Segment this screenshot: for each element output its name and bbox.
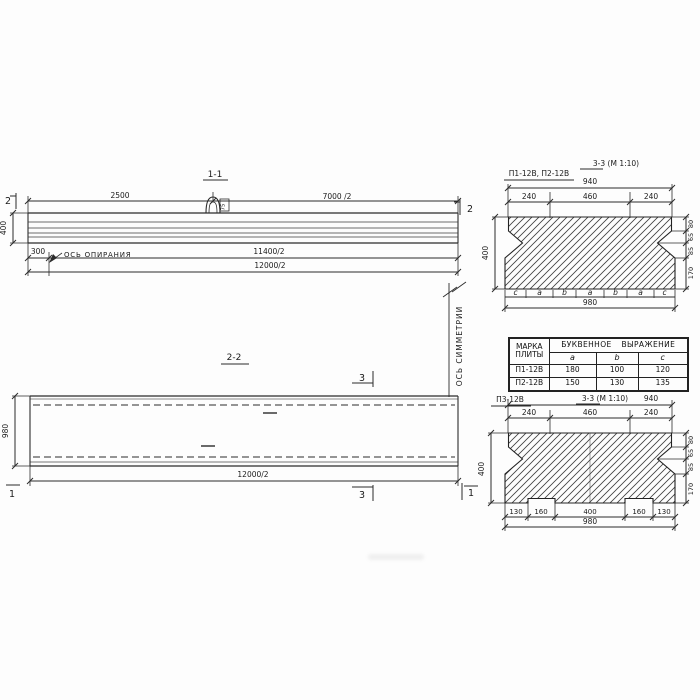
cut-mark-1-right: 1 [468,488,474,499]
section-top-title: 3-3 (М 1:10) [593,159,639,168]
cut-mark-2-left: 2 [5,196,11,207]
dim-85-top: 85 [687,247,695,255]
dim-300: 300 [31,247,46,256]
dim-160-left: 160 [534,508,547,516]
letter-a-2: a [588,288,593,297]
table-row: П1-12В 180 100 120 [509,364,688,377]
dim-980-top: 980 [583,298,598,307]
dim-400-bottom-row: 400 [583,508,596,516]
row2-c: 135 [638,377,688,391]
row1-a: 180 [549,364,596,377]
section-bottom-mark: П3-12В [496,395,524,404]
letter-a-1: a [537,288,542,297]
dim-11400-2: 11400/2 [253,247,284,256]
row2-a: 150 [549,377,596,391]
row1-mark: П1-12В [509,364,549,377]
dim-7000-2: 7000 /2 [323,192,352,201]
cut-mark-3-top: 3 [359,373,365,384]
dim-460-bottom: 460 [583,408,598,417]
dim-12000-2-elevation: 12000/2 [254,261,285,270]
scan-artifact [368,554,424,560]
elevation-title: 1-1 [208,170,223,180]
dim-980-plan: 980 [1,424,10,439]
loop-mark-label: 75 [221,203,227,210]
row1-c: 120 [638,364,688,377]
dim-400-top: 400 [481,246,490,261]
legend-table: МАРКА ПЛИТЫ БУКВЕННОЕ ВЫРАЖЕНИЕ a b c П1… [508,337,689,392]
dim-460-top: 460 [583,192,598,201]
dim-160-right: 160 [632,508,645,516]
dim-80-bottom: 80 [687,436,695,444]
letter-b-1: b [562,288,567,297]
table-col-a: a [549,352,596,364]
plan-title: 2-2 [227,353,242,363]
letter-b-2: b [613,288,618,297]
dim-130-left: 130 [509,508,522,516]
cut-mark-2-right: 2 [467,204,473,215]
dim-940-top: 940 [583,177,598,186]
letter-a-3: a [638,288,643,297]
dim-240-top-left: 240 [522,192,537,201]
cut-mark-3-bottom: 3 [359,490,365,501]
table-header-mark: МАРКА ПЛИТЫ [509,338,549,364]
dim-940-bottom: 940 [644,394,659,403]
section-bottom-title: 3-3 (М 1:10) [582,394,628,403]
support-axis-label: ОСЬ ОПИРАНИЯ [64,251,131,259]
dim-240-bottom-right: 240 [644,408,659,417]
dim-400-elevation: 400 [0,221,8,236]
row2-mark: П2-12В [509,377,549,391]
dim-980-bottom: 980 [583,517,598,526]
row2-b: 130 [596,377,638,391]
symmetry-axis-label: ОСЬ СИММЕТРИИ [455,306,464,387]
dim-170-bottom: 170 [687,483,695,495]
section-p1-p2-profile [505,217,675,289]
dim-400-bottom: 400 [477,462,486,477]
dim-240-bottom-left: 240 [522,408,537,417]
dim-65-top: 65 [687,233,695,241]
dim-170-top: 170 [687,267,695,279]
dim-2500: 2500 [110,191,129,200]
table-header-expression: БУКВЕННОЕ ВЫРАЖЕНИЕ [549,338,688,352]
dim-85-bottom: 85 [687,463,695,471]
section-top-marks: П1-12В, П2-12В [509,169,569,178]
table-row: П2-12В 150 130 135 [509,377,688,391]
section-p3-profile [505,433,675,503]
drawing-sheet: 1-1 2500 7000 /2 2 2 400 300 ОСЬ ОПИРАНИ… [0,0,700,700]
row1-b: 100 [596,364,638,377]
dim-12000-2-plan: 12000/2 [237,470,268,479]
dim-240-top-right: 240 [644,192,659,201]
cut-mark-1-left: 1 [9,489,15,500]
table-col-c: c [638,352,688,364]
table-col-b: b [596,352,638,364]
dim-65-bottom: 65 [687,449,695,457]
dim-80-top: 80 [687,220,695,228]
dim-130-right: 130 [657,508,670,516]
